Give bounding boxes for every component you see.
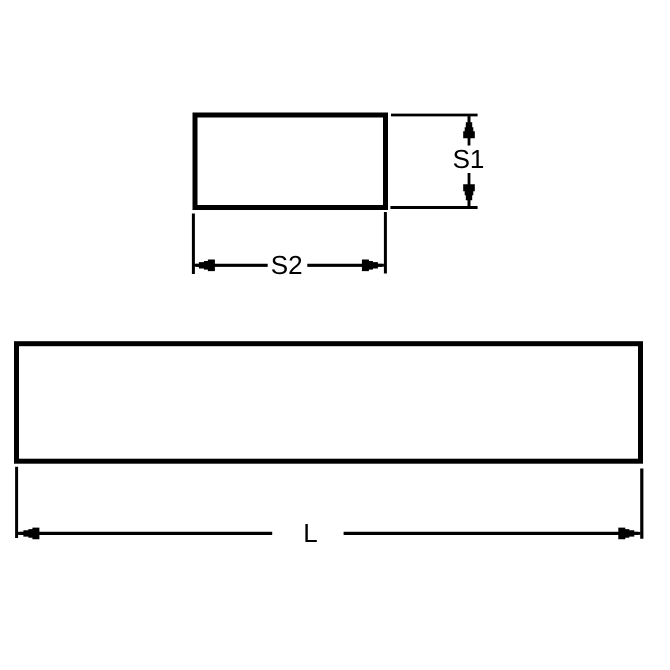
svg-text:S1: S1 [453,144,485,174]
svg-text:S2: S2 [271,250,303,280]
svg-text:L: L [303,518,317,548]
